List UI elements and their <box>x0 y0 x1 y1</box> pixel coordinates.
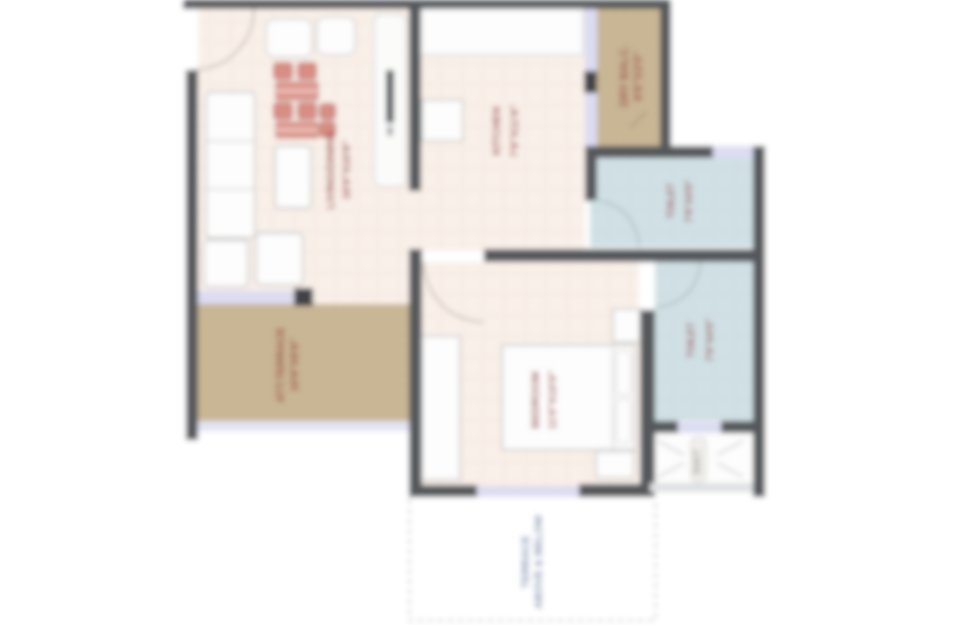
svg-text:DRY BALC.: DRY BALC. <box>619 45 631 107</box>
svg-text:TOILET: TOILET <box>686 322 697 357</box>
svg-text:11'0"X10'0": 11'0"X10'0" <box>547 370 559 429</box>
svg-text:7'6"X4'0": 7'6"X4'0" <box>705 318 716 361</box>
svg-text:KITCHEN: KITCHEN <box>491 107 503 156</box>
svg-text:6'6"X3'0": 6'6"X3'0" <box>633 51 645 101</box>
svg-text:10'6"X5'6": 10'6"X5'6" <box>289 338 301 392</box>
svg-text:7'6"X11'6": 7'6"X11'6" <box>509 105 521 158</box>
svg-text:ABOVE & BELOW: ABOVE & BELOW <box>533 514 545 609</box>
svg-text:16'6"X10'6": 16'6"X10'6" <box>341 140 353 200</box>
svg-text:LIVING/DINING: LIVING/DINING <box>325 131 337 209</box>
svg-text:7'6"X4'0": 7'6"X4'0" <box>684 179 695 222</box>
svg-text:TERRACE: TERRACE <box>520 535 532 588</box>
svg-text:TOILET: TOILET <box>666 183 677 218</box>
svg-text:DUCT: DUCT <box>692 449 702 474</box>
svg-text:BEDROOM: BEDROOM <box>530 371 542 428</box>
svg-text:ATT.TERRACE: ATT.TERRACE <box>275 327 287 403</box>
